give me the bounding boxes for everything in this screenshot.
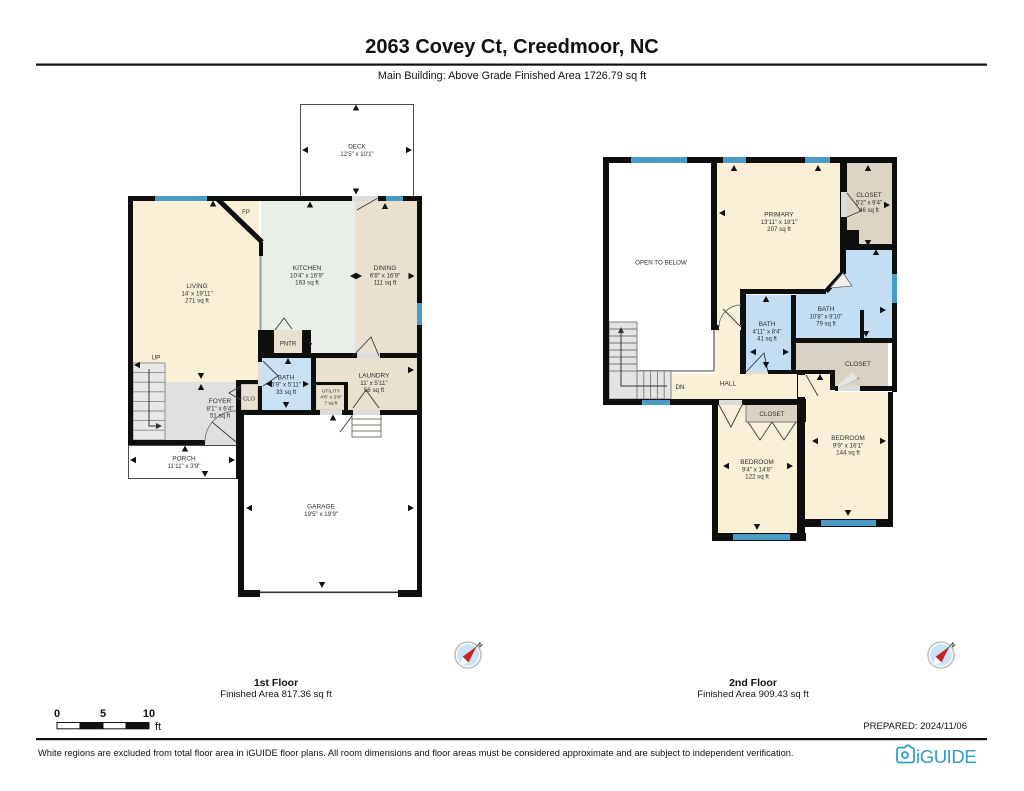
svg-text:FP: FP (242, 210, 250, 216)
svg-text:11' x 5'11": 11' x 5'11" (360, 380, 387, 387)
svg-text:1st Floor: 1st Floor (254, 677, 298, 689)
svg-text:CLOSET: CLOSET (845, 361, 871, 368)
svg-text:271 sq ft: 271 sq ft (185, 298, 209, 305)
svg-text:BEDROOM: BEDROOM (831, 435, 865, 442)
svg-text:DINING: DINING (374, 265, 397, 272)
svg-text:Finished Area 909.43 sq ft: Finished Area 909.43 sq ft (697, 689, 809, 700)
svg-text:41 sq ft: 41 sq ft (757, 337, 777, 343)
svg-text:White regions are excluded fro: White regions are excluded from total fl… (38, 748, 794, 758)
svg-text:207 sq ft: 207 sq ft (767, 226, 791, 233)
svg-text:FOYER: FOYER (209, 398, 232, 405)
svg-text:4'6" x 2'8": 4'6" x 2'8" (320, 395, 342, 401)
svg-text:PORCH: PORCH (172, 456, 196, 463)
svg-text:6'8" x 16'9": 6'8" x 16'9" (370, 272, 401, 279)
svg-text:4'11" x 8'4": 4'11" x 8'4" (752, 329, 781, 335)
svg-text:9'9" x 16'1": 9'9" x 16'1" (833, 442, 864, 449)
svg-text:14' x 19'11": 14' x 19'11" (181, 290, 212, 297)
svg-text:CLOSET: CLOSET (856, 192, 881, 199)
svg-text:OPEN TO BELOW: OPEN TO BELOW (635, 260, 687, 267)
svg-text:5'9" x 5'11": 5'9" x 5'11" (271, 382, 301, 389)
svg-text:33 sq ft: 33 sq ft (276, 389, 297, 396)
svg-text:122 sq ft: 122 sq ft (745, 474, 769, 481)
svg-text:DN: DN (675, 384, 685, 391)
svg-text:2nd Floor: 2nd Floor (729, 677, 777, 689)
svg-text:LAUNDRY: LAUNDRY (359, 373, 391, 380)
svg-text:BATH: BATH (818, 306, 835, 313)
svg-text:ft: ft (155, 721, 161, 733)
svg-text:56 sq ft: 56 sq ft (364, 387, 385, 394)
svg-text:12'5" x 10'1": 12'5" x 10'1" (340, 151, 373, 158)
svg-text:46 sq ft: 46 sq ft (859, 208, 879, 214)
svg-text:11'11" x 3'9": 11'11" x 3'9" (167, 463, 200, 470)
svg-text:10'8" x 9'10": 10'8" x 9'10" (810, 314, 843, 320)
svg-text:PRIMARY: PRIMARY (764, 212, 794, 219)
svg-text:5'2" x 9'4": 5'2" x 9'4" (856, 201, 882, 207)
svg-text:KITCHEN: KITCHEN (293, 265, 322, 272)
svg-text:CLO: CLO (243, 397, 255, 403)
svg-text:5: 5 (100, 708, 106, 720)
svg-text:BATH: BATH (759, 321, 776, 328)
svg-text:10'4" x 16'9": 10'4" x 16'9" (290, 272, 324, 279)
svg-text:8'1" x 6'4": 8'1" x 6'4" (206, 405, 233, 412)
svg-text:CLOSET: CLOSET (759, 411, 784, 418)
svg-text:Main Building: Above Grade Fin: Main Building: Above Grade Finished Area… (378, 70, 646, 82)
svg-text:51 sq ft: 51 sq ft (210, 413, 231, 420)
svg-text:UTILITY: UTILITY (322, 389, 341, 395)
svg-text:UP: UP (152, 355, 161, 362)
svg-text:BATH: BATH (278, 375, 295, 382)
svg-text:79 sq ft: 79 sq ft (816, 322, 836, 328)
svg-text:PREPARED: 2024/11/06: PREPARED: 2024/11/06 (863, 721, 967, 732)
svg-text:163 sq ft: 163 sq ft (295, 280, 319, 287)
svg-text:9'4" x 14'8": 9'4" x 14'8" (742, 466, 773, 473)
svg-text:HALL: HALL (720, 381, 737, 388)
svg-text:19'5" x 19'9": 19'5" x 19'9" (304, 511, 338, 518)
svg-text:Finished Area 817.36 sq ft: Finished Area 817.36 sq ft (220, 689, 332, 700)
svg-text:7 sq ft: 7 sq ft (324, 401, 338, 407)
svg-text:13'11" x 18'1": 13'11" x 18'1" (761, 219, 798, 226)
svg-text:111 sq ft: 111 sq ft (374, 280, 397, 287)
svg-text:GARAGE: GARAGE (307, 504, 335, 511)
svg-text:LIVING: LIVING (186, 283, 207, 290)
svg-text:PNTR: PNTR (280, 342, 297, 348)
svg-text:iGUIDE: iGUIDE (916, 746, 976, 767)
svg-text:DECK: DECK (348, 144, 366, 151)
svg-text:2063 Covey Ct, Creedmoor, NC: 2063 Covey Ct, Creedmoor, NC (365, 36, 658, 58)
svg-text:144 sq ft: 144 sq ft (836, 450, 860, 457)
svg-text:BEDROOM: BEDROOM (740, 459, 774, 466)
svg-text:10: 10 (143, 708, 155, 720)
svg-text:0: 0 (54, 708, 60, 720)
